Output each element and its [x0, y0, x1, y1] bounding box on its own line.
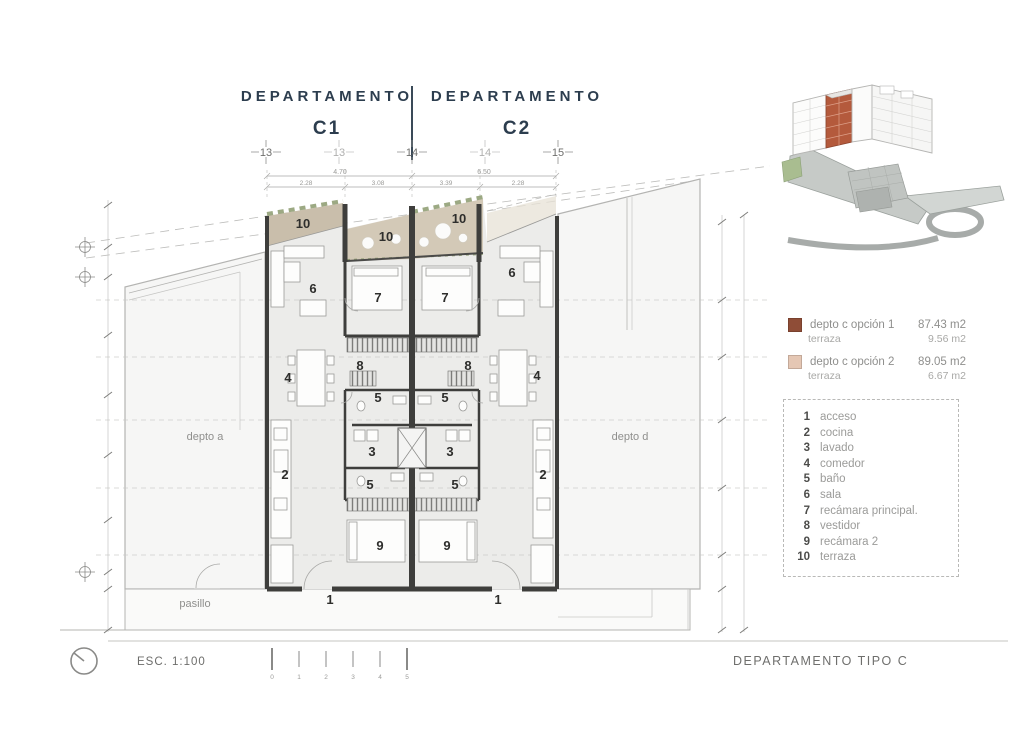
- label-c2-bano-2: 5: [451, 477, 458, 492]
- svg-text:4: 4: [378, 674, 382, 681]
- label-c2-acceso: 1: [494, 592, 501, 607]
- room-legend: 1 acceso 2 cocina 3 lavado 4 comedor 5 b…: [783, 399, 959, 577]
- dim-sub-2: 3.08: [372, 180, 385, 187]
- scale-bar: [272, 648, 407, 670]
- label-c1-acceso: 1: [326, 592, 333, 607]
- label-c1-terraza-inner: 10: [379, 229, 393, 244]
- svg-text:2: 2: [324, 674, 328, 681]
- label-c1-sala: 6: [309, 281, 316, 296]
- svg-text:0: 0: [270, 674, 274, 681]
- option-1-sub-area: 9.56 m2: [928, 333, 966, 345]
- building-3d-inset: [782, 85, 1004, 247]
- legend-item-cocina: 2 cocina: [784, 426, 958, 442]
- label-depto-d: depto d: [612, 431, 649, 443]
- ventilation-shaft: [398, 428, 426, 468]
- label-c2-recamara-principal: 7: [441, 290, 448, 305]
- dim-top-c1: 4.70: [333, 169, 347, 176]
- tower-white-left: [793, 95, 826, 155]
- label-c1-comedor: 4: [284, 370, 292, 385]
- area-summary: depto c opción 1 87.43 m2 terraza 9.56 m…: [788, 318, 966, 392]
- label-c1-vestidor: 8: [356, 358, 363, 373]
- label-c1-lavado: 3: [368, 444, 375, 459]
- tower-white-right: [852, 85, 932, 153]
- north-indicator-icon: [71, 648, 97, 674]
- grid-marker-15: 15: [552, 147, 564, 159]
- grid-marker-13b: 13: [333, 147, 345, 159]
- scale-text: ESC. 1:100: [137, 656, 206, 668]
- label-c2-terraza-inner: 10: [452, 211, 466, 226]
- label-c2-bano-1: 5: [441, 390, 448, 405]
- label-c2-lavado: 3: [446, 444, 453, 459]
- grid-marker-14b: 14: [479, 147, 491, 159]
- road: [788, 238, 938, 247]
- label-c1-bano-1: 5: [374, 390, 381, 405]
- area-option-1: depto c opción 1 87.43 m2 terraza 9.56 m…: [788, 318, 966, 345]
- legend-item-lavado: 3 lavado: [784, 441, 958, 457]
- label-c2-vestidor: 8: [464, 358, 471, 373]
- corridor: [60, 589, 690, 630]
- label-c1-bano-2: 5: [366, 477, 373, 492]
- option-1-label: depto c opción 1: [810, 319, 918, 331]
- legend-item-sala: 6 sala: [784, 488, 958, 504]
- sheet: DEPARTAMENTO C1 DEPARTAMENTO C2 13: [0, 0, 1024, 733]
- legend-item-comedor: 4 comedor: [784, 457, 958, 473]
- option-2-area: 89.05 m2: [918, 356, 966, 368]
- adjacent-unit-right: [558, 179, 700, 611]
- dim-top-c2: 6.50: [477, 169, 491, 176]
- label-c2-recamara-2: 9: [443, 538, 450, 553]
- legend-item-vestidor: 8 vestidor: [784, 519, 958, 535]
- dimension-right: [718, 212, 748, 633]
- label-c2-comedor: 4: [533, 368, 541, 383]
- legend-item-bano: 5 baño: [784, 472, 958, 488]
- svg-text:1: 1: [297, 674, 301, 681]
- legend-item-acceso: 1 acceso: [784, 410, 958, 426]
- dimension-left: [75, 200, 112, 633]
- label-c1-terraza-outer: 10: [296, 216, 310, 231]
- grid-marker-13a: 13: [260, 147, 272, 159]
- option-2-sub-area: 6.67 m2: [928, 370, 966, 382]
- option-2-sub-label: terraza: [808, 370, 928, 382]
- option-1-swatch: [788, 318, 802, 332]
- legend-item-recamara-2: 9 recámara 2: [784, 535, 958, 551]
- adjacent-unit-left: [125, 252, 265, 591]
- label-depto-a: depto a: [187, 431, 225, 443]
- legend-item-terraza: 10 terraza: [784, 550, 958, 566]
- sheet-title: DEPARTAMENTO TIPO C: [733, 654, 908, 668]
- label-c1-recamara-2: 9: [376, 538, 383, 553]
- dim-sub-3: 3.39: [440, 180, 453, 187]
- scale-bar-labels: 0 1 2 3 4 5: [270, 674, 409, 681]
- label-c1-cocina: 2: [281, 467, 288, 482]
- area-option-2: depto c opción 2 89.05 m2 terraza 6.67 m…: [788, 355, 966, 382]
- option-2-label: depto c opción 2: [810, 356, 918, 368]
- dim-sub-1: 2.28: [300, 180, 313, 187]
- grid-marker-14a: 14: [406, 147, 418, 159]
- dim-sub-4: 2.28: [512, 180, 525, 187]
- legend-item-recamara-principal: 7 recámara principal.: [784, 504, 958, 520]
- svg-text:5: 5: [405, 674, 409, 681]
- option-1-area: 87.43 m2: [918, 319, 966, 331]
- option-1-sub-label: terraza: [808, 333, 928, 345]
- label-pasillo: pasillo: [179, 598, 210, 610]
- label-c2-cocina: 2: [539, 467, 546, 482]
- option-2-swatch: [788, 355, 802, 369]
- grid-markers: 13 13 14 14 15: [251, 140, 573, 164]
- label-c1-recamara-principal: 7: [374, 290, 381, 305]
- label-c2-sala: 6: [508, 265, 515, 280]
- svg-text:3: 3: [351, 674, 355, 681]
